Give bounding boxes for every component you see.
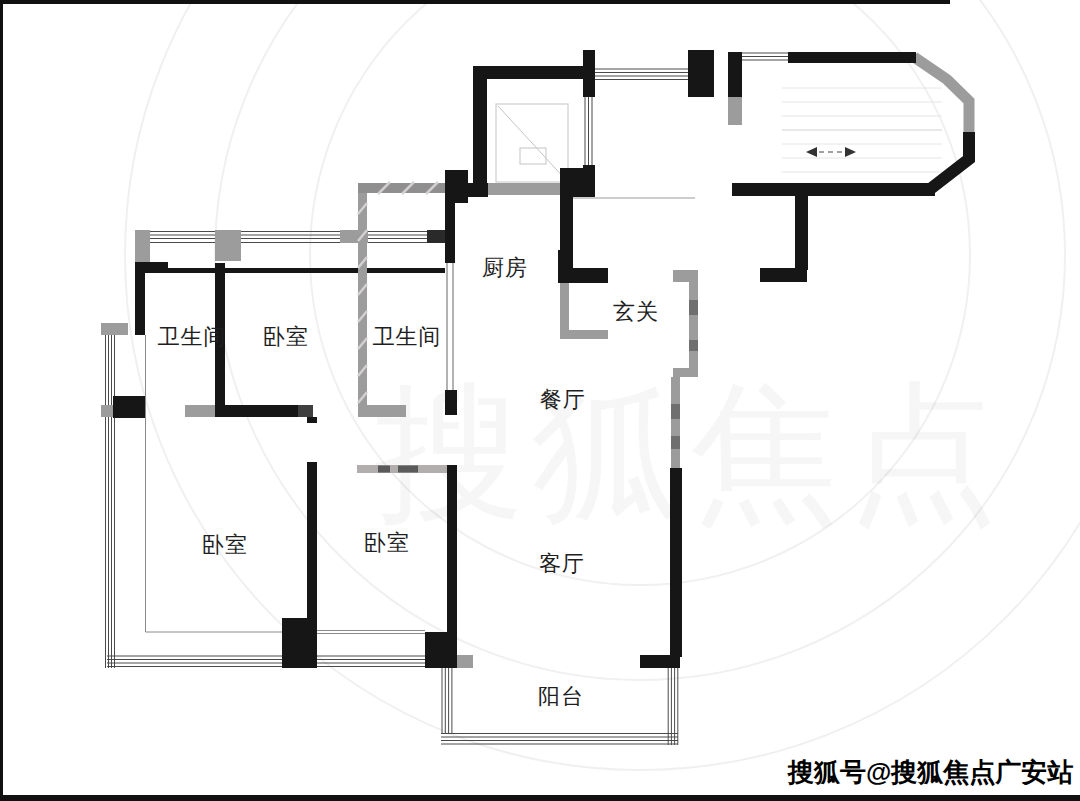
stair-top-wall	[788, 52, 916, 63]
bedroom-pier	[282, 618, 317, 668]
bath-right-gray-wall	[358, 183, 367, 415]
stair-bottom-wall	[732, 183, 935, 196]
corridor-pier-a	[688, 50, 714, 97]
room-label-bathroom-right: 卫生间	[373, 322, 442, 352]
corridor-pier-b	[728, 52, 742, 97]
stair-direction-arrows	[806, 147, 856, 157]
kitchen-left-wall-lower	[445, 390, 457, 415]
bath-left-door-sill	[185, 405, 215, 417]
stair-lower-block	[760, 268, 807, 282]
room-label-living: 客厅	[539, 549, 585, 579]
room-label-kitchen: 厨房	[482, 253, 528, 283]
corridor-gray-block	[728, 97, 742, 125]
floor-plan-page: 搜狐焦点	[0, 0, 1080, 801]
room-label-bedroom-bottom-middle: 卧室	[364, 528, 410, 558]
stair-lower-wall-v	[795, 196, 808, 270]
bath-left-wall	[135, 262, 145, 335]
top-pier-1	[135, 230, 150, 263]
shaft-left-wall	[473, 66, 487, 183]
shaft-top-wall	[473, 66, 593, 79]
corridor-window-top-right	[740, 53, 790, 60]
shaft-right-wall-top	[583, 50, 595, 97]
room-label-entry: 玄关	[613, 297, 659, 327]
bedroom-corner-block	[425, 632, 457, 668]
left-sill-upper	[101, 323, 128, 335]
room-label-bedroom-top: 卧室	[263, 322, 309, 352]
living-bottom-stub	[640, 655, 680, 668]
room-label-bathroom-left: 卫生间	[158, 322, 227, 352]
left-corner-block	[113, 396, 145, 418]
shaft-right-wall-bottom	[583, 165, 595, 185]
kitchen-left-wall	[445, 183, 455, 263]
room-label-bedroom-bottom-left: 卧室	[202, 530, 248, 560]
border-left	[0, 0, 3, 801]
elevator-symbol	[496, 104, 568, 182]
bedroom-divider	[307, 462, 317, 622]
bedroom-divider-stub	[307, 417, 317, 423]
stair-tread-lines	[782, 88, 942, 172]
arrow-left-icon	[806, 147, 817, 157]
dining-gray-wall-right	[671, 377, 680, 468]
entry-gray-wall-right-cap	[673, 270, 698, 282]
entry-gray-wall-left-h	[560, 330, 608, 339]
bath-left-stub	[145, 262, 168, 273]
bath-right-gray-sill	[358, 405, 406, 417]
entry-gray-wall-left-v	[560, 283, 569, 330]
room-label-dining: 餐厅	[540, 385, 586, 415]
ghost-watermark-text: 搜狐焦点	[374, 369, 1006, 537]
interior-thin-walls	[145, 268, 445, 273]
window-band-bottom	[107, 656, 453, 667]
shaft-door-lines	[585, 97, 592, 167]
border-bottom	[0, 795, 1080, 801]
corridor-window-top-left	[593, 69, 690, 80]
top-pier-4	[427, 230, 445, 243]
balcony-window-left	[442, 668, 452, 734]
bedroom-right-wall	[447, 465, 457, 632]
entry-wall-upper	[558, 250, 573, 283]
arrow-right-icon	[845, 147, 856, 157]
room-label-balcony: 阳台	[538, 682, 584, 712]
window-band-left	[106, 330, 115, 668]
window-band-top	[138, 232, 445, 243]
shaft-sill	[488, 183, 560, 195]
gray-walls	[101, 57, 969, 668]
entry-gray-wall-step	[673, 368, 698, 377]
entry-top-stub	[573, 268, 608, 283]
living-right-wall	[670, 468, 682, 657]
top-pier-2	[215, 230, 241, 261]
entry-gray-wall-right-v	[689, 282, 698, 368]
bath-left-bottom-wall	[215, 405, 298, 417]
watermark-text: 搜狐号@搜狐焦点广安站	[788, 755, 1070, 790]
border-top	[0, 0, 950, 4]
wall-end-cap	[298, 405, 313, 417]
